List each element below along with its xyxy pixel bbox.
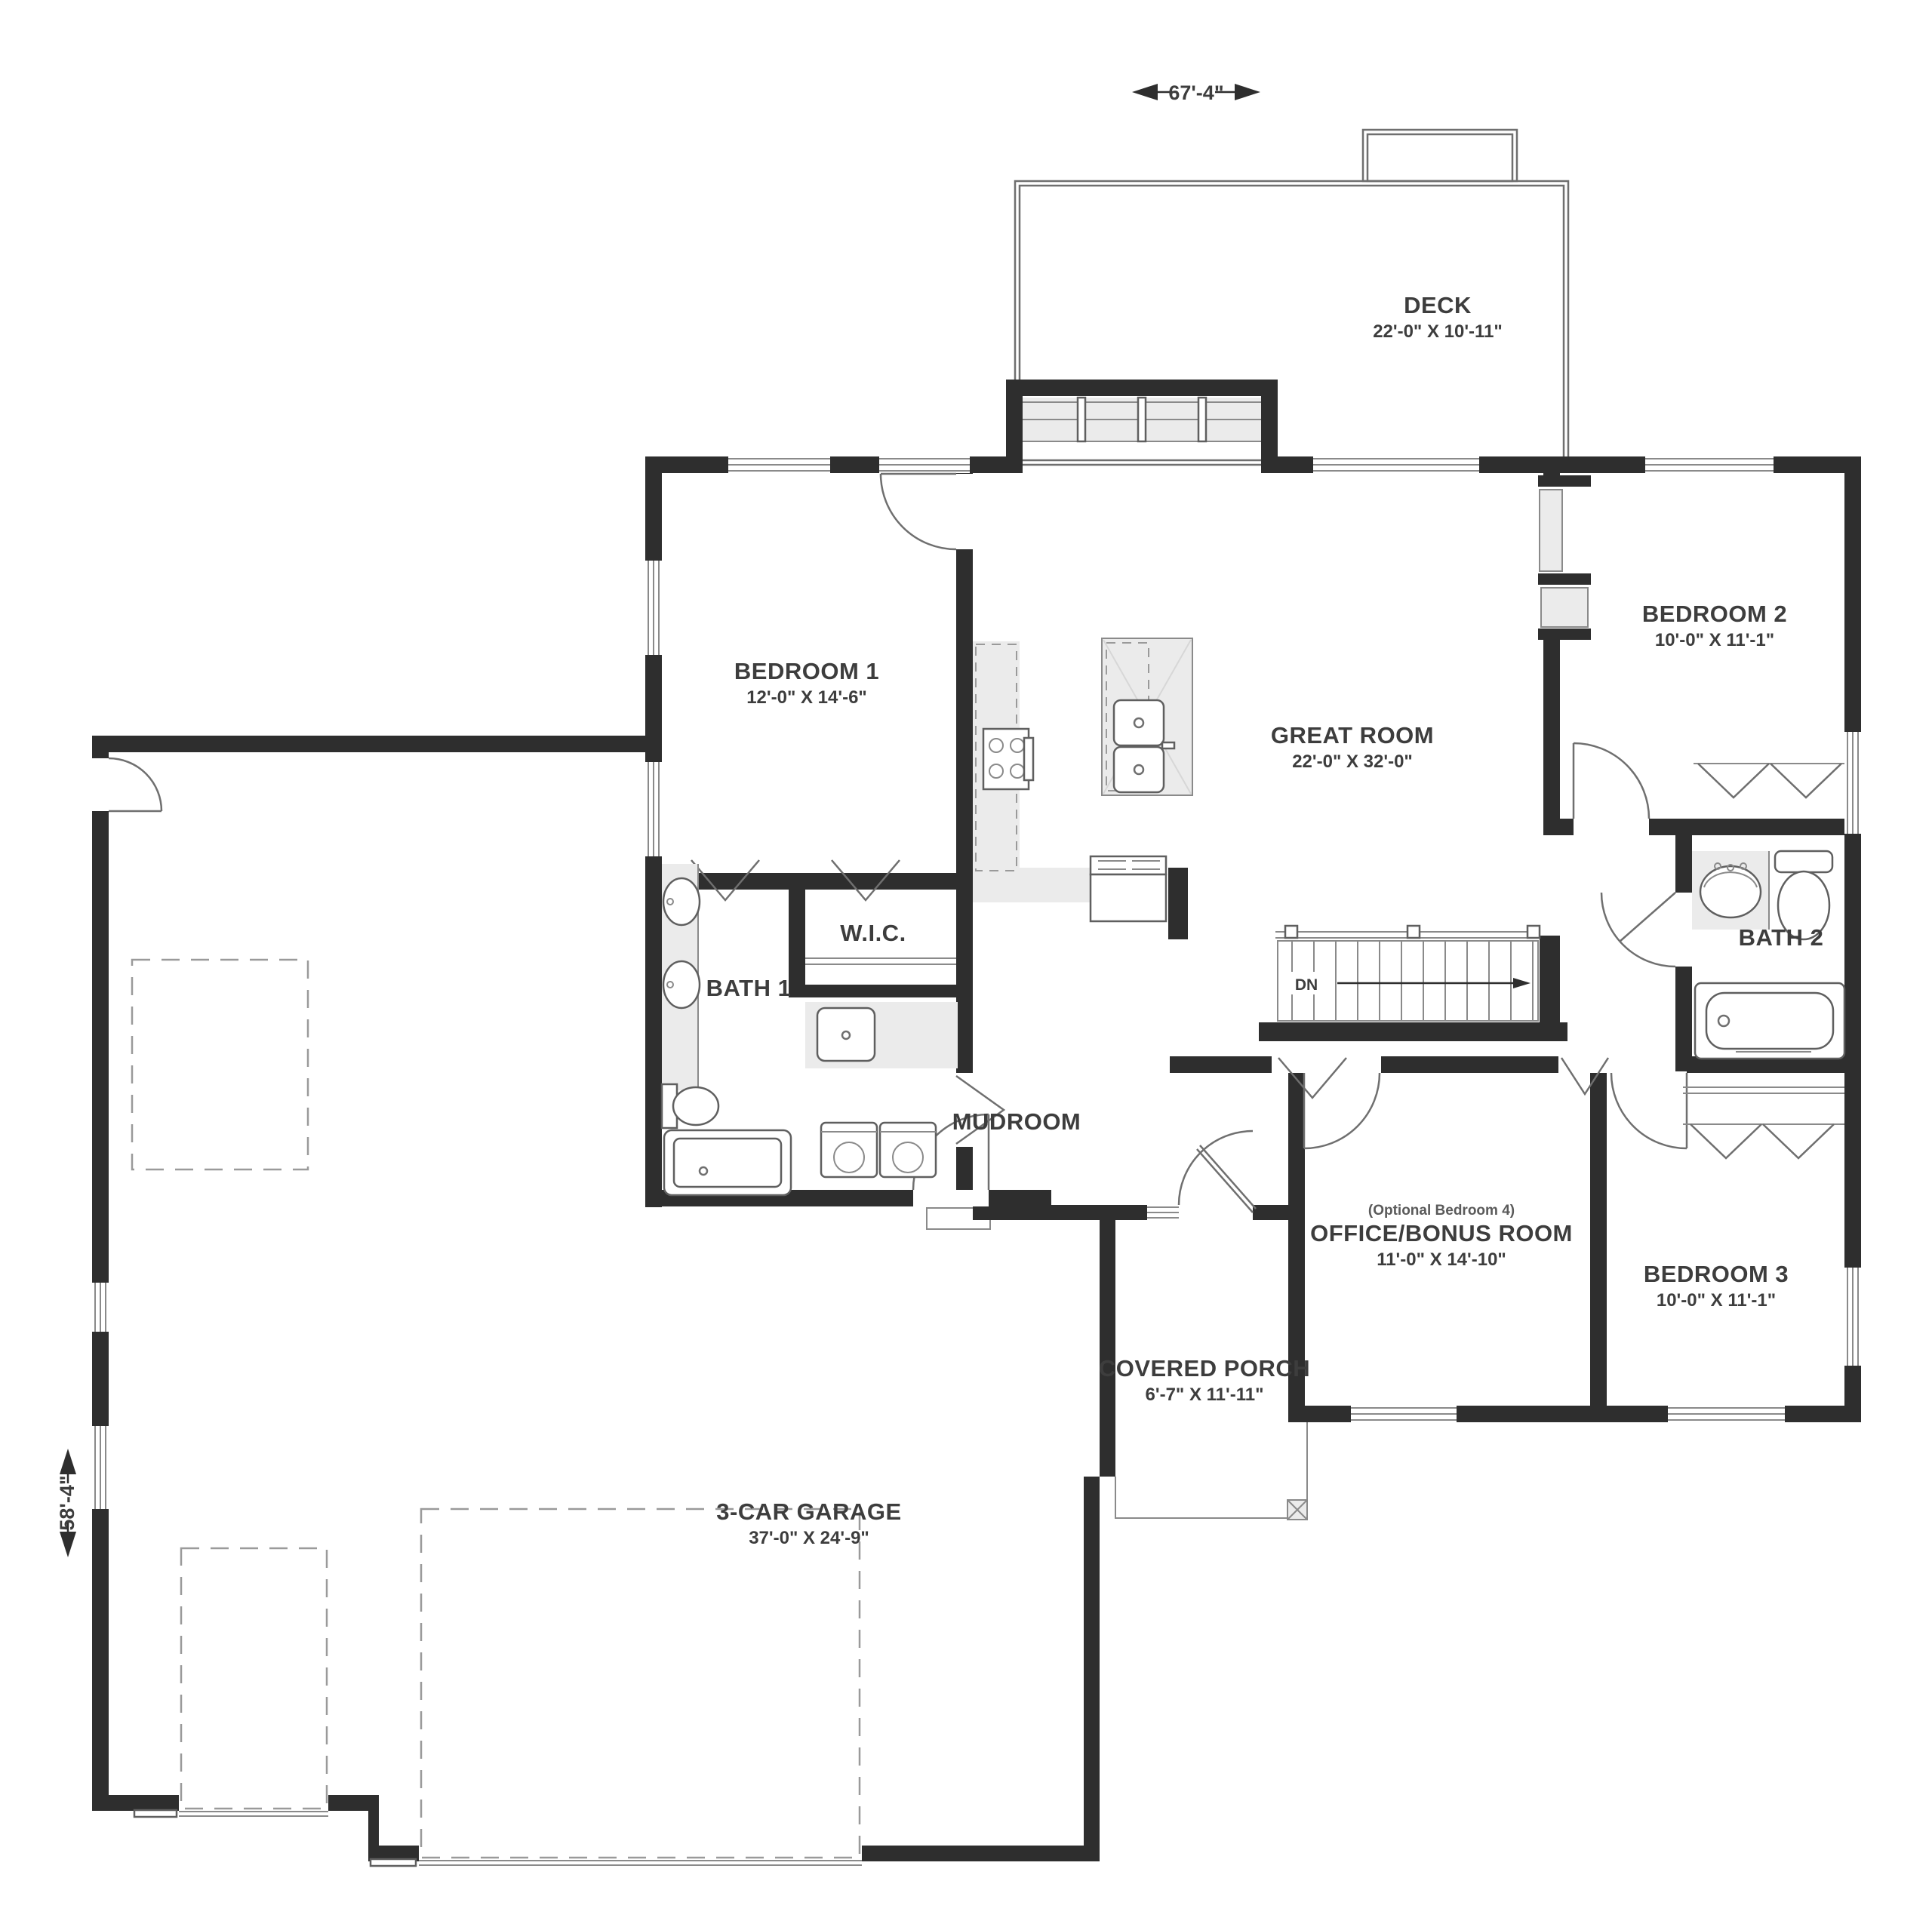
bath1-sink-1	[663, 878, 700, 925]
svg-text:BEDROOM 1: BEDROOM 1	[734, 658, 879, 684]
label-wic: W.I.C.	[840, 920, 906, 946]
window-top-1	[728, 456, 830, 473]
label-garage: 3-CAR GARAGE 37'-0" X 24'-9"	[716, 1498, 901, 1548]
window-bedroom2-top	[1645, 456, 1774, 473]
svg-text:3-CAR GARAGE: 3-CAR GARAGE	[716, 1498, 901, 1525]
bath1-fixtures	[662, 864, 791, 1195]
stair-newel-1	[1285, 926, 1297, 938]
label-bath-2: BATH 2	[1739, 924, 1824, 951]
svg-text:11'-0" X 14'-10": 11'-0" X 14'-10"	[1377, 1249, 1506, 1270]
garage-door-projections	[132, 960, 860, 1858]
overall-depth-label: 58'-4"	[56, 1475, 78, 1530]
stairs: DN	[1275, 926, 1540, 1021]
range	[983, 729, 1033, 789]
label-office: (Optional Bedroom 4) OFFICE/BONUS ROOM 1…	[1310, 1203, 1573, 1270]
label-bedroom-2: BEDROOM 2 10'-0" X 11'-1"	[1642, 601, 1787, 650]
great-room-builtins	[1540, 490, 1588, 627]
bedroom1-door-arc	[881, 474, 956, 549]
island-sink-2	[1114, 747, 1164, 792]
svg-text:W.I.C.: W.I.C.	[840, 920, 906, 946]
window-entry	[1147, 1205, 1179, 1220]
svg-text:22'-0" X 32'-0": 22'-0" X 32'-0"	[1292, 751, 1413, 772]
window-bedroom3-bottom	[1668, 1406, 1785, 1422]
svg-text:MUDROOM: MUDROOM	[952, 1108, 1081, 1135]
svg-text:37'-0" X 24'-9": 37'-0" X 24'-9"	[749, 1528, 869, 1548]
svg-text:12'-0" X 14'-6": 12'-0" X 14'-6"	[746, 687, 867, 708]
stairs-dn-label: DN	[1295, 976, 1318, 994]
laundry-sink	[817, 1008, 875, 1061]
window-bedroom3-right	[1844, 1268, 1861, 1366]
office-door-arc	[1304, 1073, 1380, 1148]
stair-newel-2	[1407, 926, 1420, 938]
window-bedroom1-left-b	[645, 762, 662, 856]
window-greatroom-deck	[1313, 456, 1479, 473]
bath2-sink	[1700, 866, 1761, 917]
window-bedroom2-right	[1844, 732, 1861, 834]
bath1-shower	[664, 1130, 791, 1195]
svg-text:10'-0" X 11'-1": 10'-0" X 11'-1"	[1657, 1290, 1776, 1311]
bath1-toilet	[662, 1084, 718, 1128]
svg-text:COVERED PORCH: COVERED PORCH	[1099, 1355, 1310, 1382]
kitchen	[973, 638, 1192, 921]
garage-service-door-arc	[109, 758, 162, 811]
kitchen-cooktop	[1091, 856, 1166, 874]
label-bedroom-1: BEDROOM 1 12'-0" X 14'-6"	[734, 658, 879, 708]
svg-text:BATH 2: BATH 2	[1739, 924, 1824, 951]
sliding-patio-door	[1023, 398, 1261, 441]
svg-text:DECK: DECK	[1404, 292, 1472, 318]
svg-text:6'-7" X 11'-11": 6'-7" X 11'-11"	[1146, 1385, 1264, 1405]
garage-door-sill-left	[134, 1810, 177, 1817]
svg-text:BATH 1: BATH 1	[706, 975, 792, 1001]
stair-newel-3	[1527, 926, 1540, 938]
window-garage-left-a	[92, 1283, 109, 1332]
island-sink-1	[1114, 700, 1164, 745]
bedroom3-door-arc	[1611, 1073, 1687, 1148]
laundry	[805, 1002, 958, 1177]
label-bath-1: BATH 1	[706, 975, 792, 1001]
dryer	[880, 1123, 936, 1177]
label-deck: DECK 22'-0" X 10'-11"	[1373, 292, 1503, 342]
window-garage-left-b	[92, 1426, 109, 1509]
svg-text:22'-0" X 10'-11": 22'-0" X 10'-11"	[1373, 321, 1503, 342]
svg-text:GREAT ROOM: GREAT ROOM	[1271, 722, 1434, 748]
floor-plan-drawing: DN	[0, 0, 1932, 1924]
bedroom3-closet-doors	[1690, 1124, 1761, 1158]
dimension-top: 67'-4"	[1132, 81, 1260, 104]
dimension-left: 58'-4"	[56, 1449, 78, 1557]
label-great-room: GREAT ROOM 22'-0" X 32'-0"	[1271, 722, 1434, 772]
label-porch: COVERED PORCH 6'-7" X 11'-11"	[1099, 1355, 1310, 1405]
garage-door-sill-mid	[371, 1859, 416, 1866]
window-bedroom1-left-a	[645, 561, 662, 655]
island-faucet	[1162, 742, 1174, 748]
bedroom2-closet-doors	[1698, 764, 1769, 798]
label-mudroom: MUDROOM	[952, 1108, 1081, 1135]
room-labels: DECK 22'-0" X 10'-11" BEDROOM 1 12'-0" X…	[706, 292, 1824, 1548]
bedroom2-door-arc	[1574, 743, 1649, 819]
svg-text:BEDROOM 3: BEDROOM 3	[1644, 1261, 1789, 1287]
svg-text:BEDROOM 2: BEDROOM 2	[1642, 601, 1787, 627]
window-office-bottom	[1351, 1406, 1457, 1422]
kitchen-base-cabinet	[1091, 874, 1166, 921]
washer	[821, 1123, 877, 1177]
svg-text:OFFICE/BONUS ROOM: OFFICE/BONUS ROOM	[1310, 1220, 1573, 1246]
bath1-sink-2	[663, 961, 700, 1008]
bedroom3-closet-doors-2	[1763, 1124, 1834, 1158]
svg-text:10'-0" X 11'-1": 10'-0" X 11'-1"	[1655, 630, 1774, 650]
bath2-door-arc	[1601, 893, 1675, 967]
label-bedroom-3: BEDROOM 3 10'-0" X 11'-1"	[1644, 1261, 1789, 1311]
svg-text:(Optional Bedroom 4): (Optional Bedroom 4)	[1368, 1203, 1515, 1219]
bath2-fixtures	[1692, 851, 1844, 1059]
bath2-tub	[1695, 983, 1844, 1059]
floor-plan-page: DN	[0, 0, 1932, 1924]
kitchen-island	[1102, 638, 1192, 795]
window-top-2	[879, 456, 970, 473]
bedroom2-closet-doors-2	[1770, 764, 1841, 798]
